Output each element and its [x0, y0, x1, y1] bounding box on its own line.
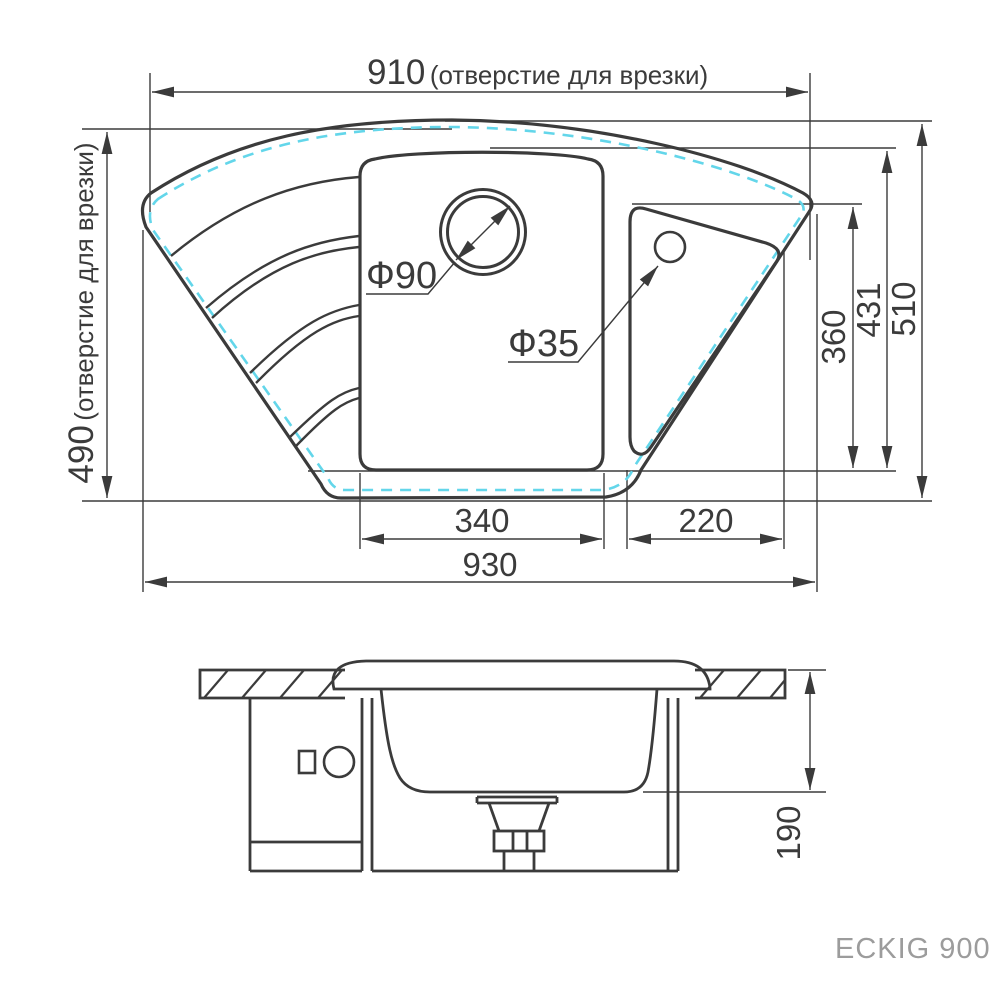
drawing-sheet: Ф90 Ф35 910 (отверстие для врезки) 490 (… — [0, 0, 1000, 1000]
drain-hole — [441, 190, 526, 275]
side-bowl — [630, 208, 779, 454]
dim-cutout-depth: 490 (отверстие для врезки) — [62, 132, 107, 498]
dim-cutout-width-note: (отверстие для врезки) — [430, 60, 708, 90]
drain-assembly — [477, 797, 557, 871]
sink-outline — [142, 120, 811, 498]
cutout-dashline — [150, 127, 804, 490]
dim-cutout-width: 910 (отверстие для врезки) — [152, 53, 808, 92]
cabinet-lines — [250, 698, 678, 871]
countertop-left — [200, 670, 345, 698]
dim-cutout-depth-note: (отверстие для врезки) — [69, 142, 99, 420]
cabinet-circle-symbol — [324, 747, 354, 777]
tap-hole-callout: Ф35 — [508, 266, 658, 365]
tap-hole — [655, 232, 685, 262]
svg-text:490 (отверстие для врезки): 490 (отверстие для врезки) — [62, 142, 101, 483]
top-view: Ф90 Ф35 910 (отверстие для врезки) 490 (… — [62, 53, 932, 592]
dim-main-bowl-depth: 431 — [850, 151, 887, 468]
dim-main-bowl-depth-value: 431 — [850, 282, 887, 337]
dim-cutout-width-value: 910 — [367, 53, 425, 92]
dim-side-bowl-depth: 360 — [815, 207, 853, 468]
dim-cutout-depth-value: 490 — [62, 425, 101, 483]
section-view: 190 — [200, 661, 826, 871]
model-label: ECKIG 900 — [835, 933, 991, 965]
drain-diameter-label: Ф90 — [366, 255, 437, 297]
dim-side-bowl-width: 220 — [629, 502, 782, 539]
svg-text:910 (отверстие для врезки): 910 (отверстие для врезки) — [367, 53, 708, 92]
drainboard-ribs — [171, 177, 359, 446]
dim-overall-width-value: 930 — [462, 546, 517, 583]
dim-main-bowl-width-value: 340 — [454, 502, 509, 539]
drain-hole-callout: Ф90 — [366, 255, 455, 297]
dim-bowl-depth-value: 190 — [770, 805, 807, 860]
tap-diameter-label: Ф35 — [508, 323, 579, 365]
dim-side-bowl-depth-value: 360 — [815, 309, 852, 364]
dim-overall-depth: 510 — [885, 124, 922, 498]
sink-rim-profile — [333, 661, 710, 689]
dim-main-bowl-width: 340 — [362, 502, 602, 539]
cabinet-square-symbol — [299, 751, 315, 773]
dim-overall-width: 930 — [145, 546, 815, 583]
bowl-section — [381, 689, 657, 792]
technical-drawing: Ф90 Ф35 910 (отверстие для врезки) 490 (… — [0, 0, 1000, 1000]
dim-side-bowl-width-value: 220 — [678, 502, 733, 539]
main-bowl — [360, 152, 603, 470]
dim-overall-depth-value: 510 — [885, 281, 922, 336]
